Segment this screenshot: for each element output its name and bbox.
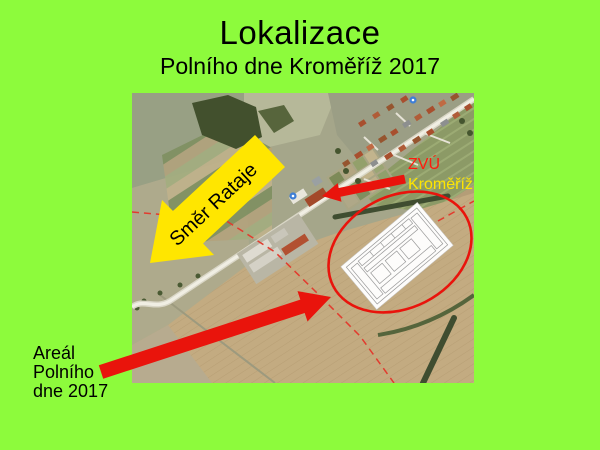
- field-plan-overlay: [341, 202, 454, 309]
- slide-localization: Lokalizace Polního dne Kroměříž 2017: [0, 0, 600, 450]
- areal-label-line1: Areál: [33, 344, 108, 363]
- areal-label-line3: dne 2017: [33, 382, 108, 401]
- direction-arrow: Směr Rataje: [150, 135, 285, 263]
- zvu-label-line1: ZVÚ: [408, 154, 440, 173]
- areal-label-line2: Polního: [33, 363, 108, 382]
- zvu-pointer-arrow: [322, 175, 406, 202]
- areal-pointer-arrow: [99, 291, 331, 379]
- areal-label: Areál Polního dne 2017: [33, 344, 108, 401]
- zvu-label-line2: Kroměříž: [408, 176, 473, 193]
